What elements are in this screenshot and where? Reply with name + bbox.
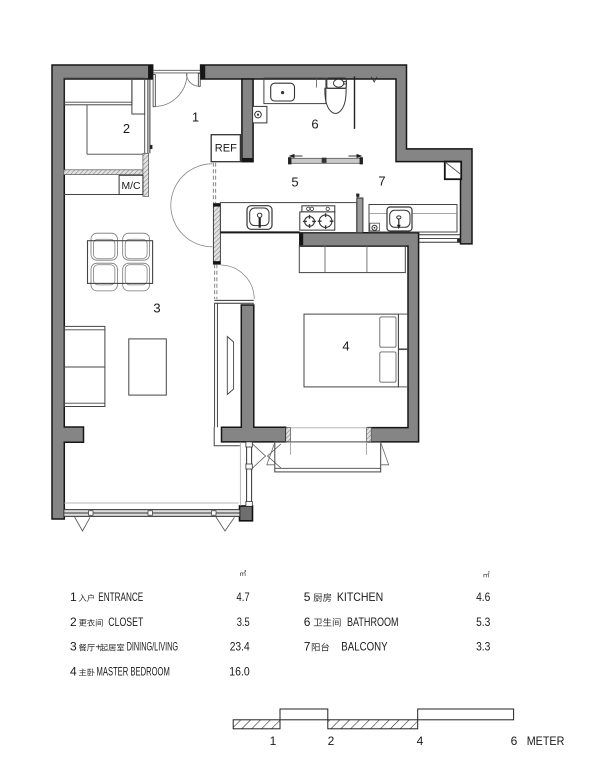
- svg-text:ENTRANCE: ENTRANCE: [98, 590, 143, 604]
- svg-text:CLOSET: CLOSET: [108, 615, 143, 629]
- svg-text:+: +: [95, 643, 101, 654]
- svg-text:M/C: M/C: [122, 180, 141, 192]
- svg-text:5: 5: [304, 590, 311, 604]
- svg-text:1: 1: [192, 110, 199, 125]
- svg-text:3: 3: [70, 640, 77, 654]
- svg-text:4.6: 4.6: [476, 590, 490, 604]
- svg-text:6: 6: [311, 117, 318, 132]
- svg-text:2: 2: [70, 615, 77, 629]
- svg-text:KITCHEN: KITCHEN: [337, 590, 383, 604]
- svg-text:5.3: 5.3: [476, 615, 490, 629]
- svg-text:4.7: 4.7: [236, 590, 250, 604]
- svg-text:6: 6: [304, 615, 311, 629]
- svg-text:1: 1: [70, 590, 77, 604]
- svg-text:5: 5: [291, 175, 298, 190]
- svg-text:MASTER BEDROOM: MASTER BEDROOM: [97, 664, 170, 678]
- svg-text:3.5: 3.5: [237, 615, 250, 629]
- svg-text:BALCONY: BALCONY: [341, 640, 387, 654]
- svg-text:4: 4: [342, 339, 349, 354]
- svg-text:BATHROOM: BATHROOM: [347, 615, 399, 629]
- svg-text:METER: METER: [527, 734, 565, 748]
- svg-text:1: 1: [270, 734, 277, 748]
- svg-text:3: 3: [153, 301, 160, 316]
- svg-text:7: 7: [378, 174, 385, 189]
- svg-text:DINING/LIVING: DINING/LIVING: [127, 640, 178, 654]
- svg-text:23.4: 23.4: [230, 640, 250, 654]
- svg-text:4: 4: [70, 664, 77, 678]
- svg-text:16.0: 16.0: [229, 664, 250, 678]
- svg-text:REF: REF: [215, 142, 237, 154]
- svg-text:7: 7: [304, 640, 311, 654]
- svg-text:4: 4: [417, 734, 424, 748]
- svg-text:3.3: 3.3: [476, 640, 490, 654]
- svg-text:6: 6: [511, 734, 518, 748]
- svg-text:2: 2: [328, 734, 335, 748]
- svg-text:2: 2: [123, 121, 130, 136]
